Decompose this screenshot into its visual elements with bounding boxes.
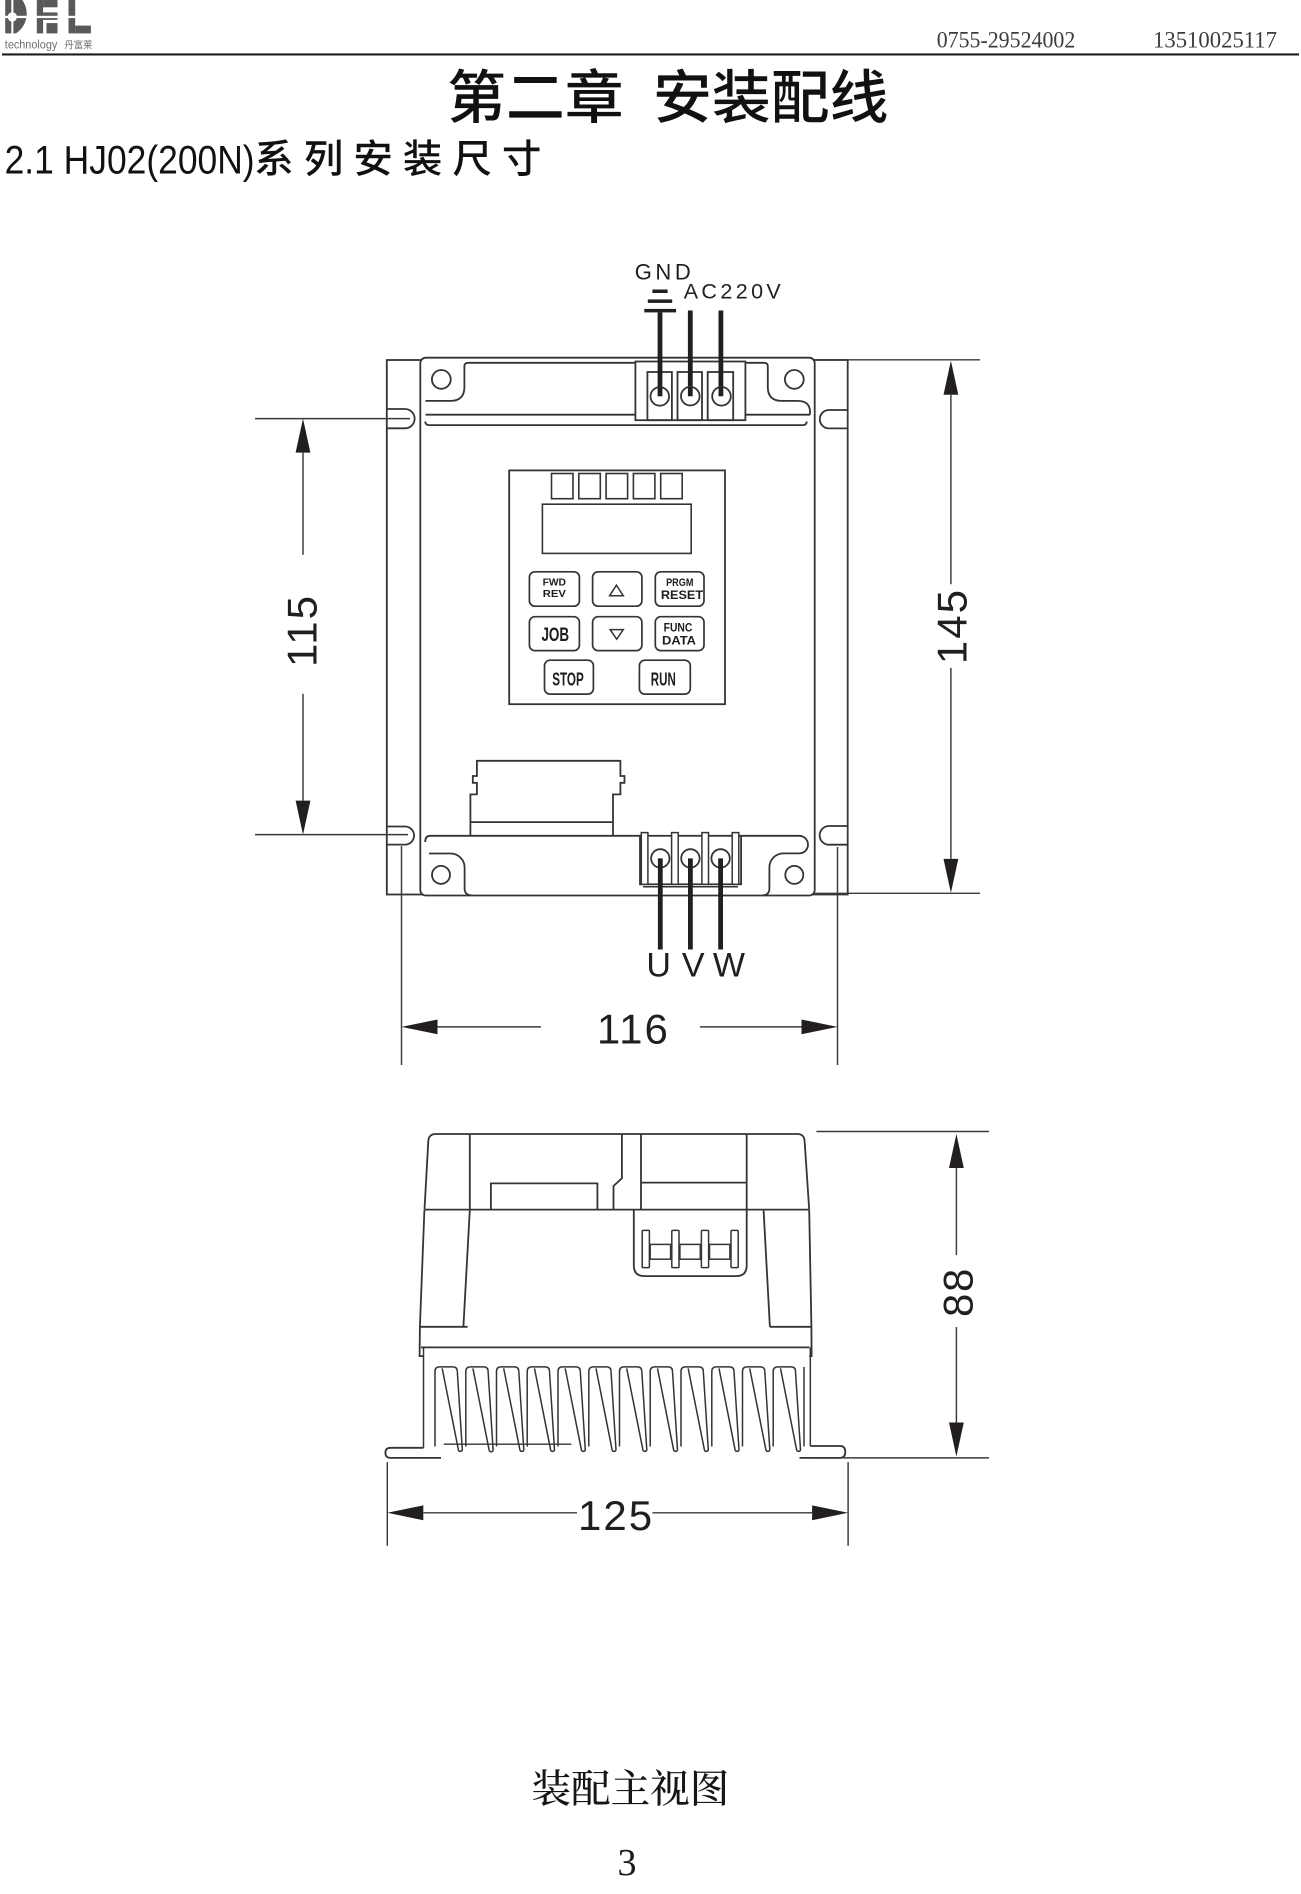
svg-text:0755-29524002: 0755-29524002 [937, 28, 1076, 53]
svg-text:PRGM: PRGM [666, 577, 693, 589]
svg-text:115: 115 [279, 594, 326, 667]
svg-text:116: 116 [597, 1006, 670, 1053]
svg-text:W: W [713, 947, 745, 985]
svg-text:AC220V: AC220V [684, 279, 784, 303]
svg-text:DATA: DATA [662, 634, 696, 648]
svg-text:technology: technology [5, 40, 58, 52]
svg-text:JOB: JOB [541, 624, 569, 646]
svg-text:125: 125 [578, 1492, 654, 1539]
svg-text:2.1 HJ02(200N): 2.1 HJ02(200N) [5, 139, 255, 183]
svg-text:RESET: RESET [661, 588, 704, 602]
svg-text:13510025117: 13510025117 [1153, 28, 1277, 53]
svg-text:3: 3 [618, 1842, 637, 1884]
svg-text:88: 88 [934, 1267, 981, 1317]
svg-text:STOP: STOP [552, 668, 584, 689]
svg-text:U: U [646, 947, 671, 985]
svg-text:REV: REV [543, 588, 566, 600]
svg-text:FWD: FWD [543, 576, 567, 588]
svg-text:145: 145 [929, 588, 976, 664]
svg-text:V: V [682, 947, 705, 985]
svg-text:RUN: RUN [651, 668, 676, 689]
